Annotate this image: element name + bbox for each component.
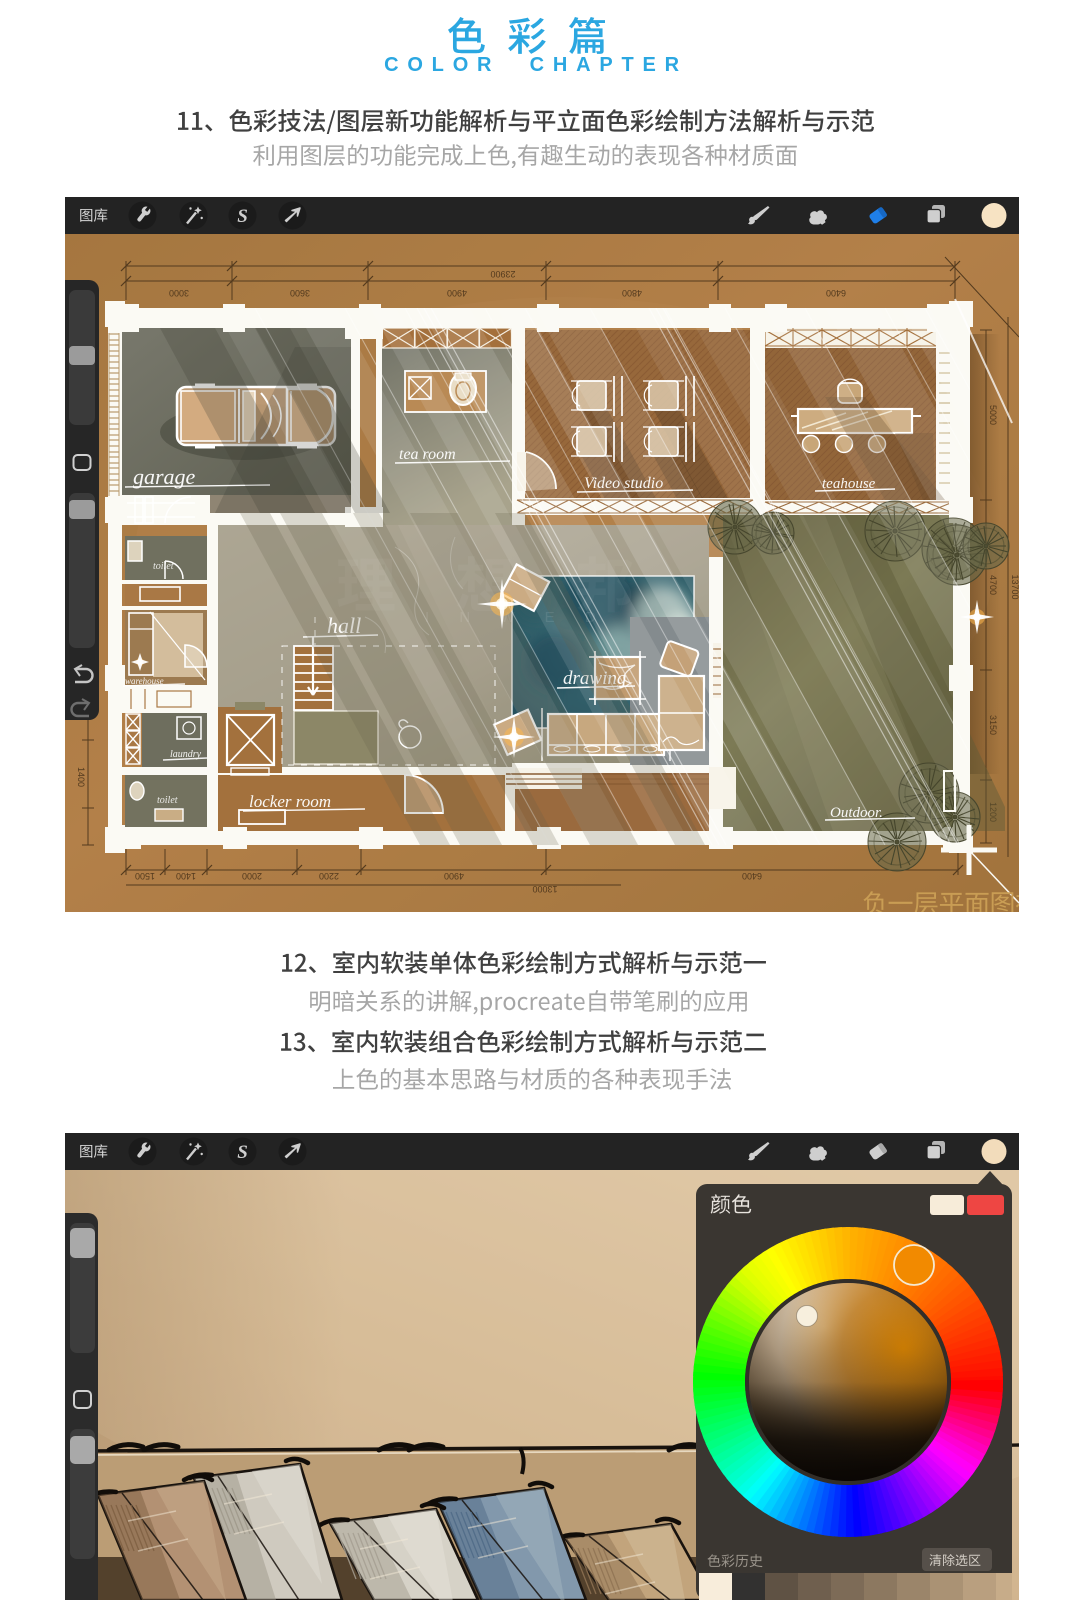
svg-text:S: S — [237, 206, 248, 227]
svg-text:6400: 6400 — [826, 288, 846, 298]
svg-text:1400: 1400 — [176, 871, 196, 881]
svg-text:1500: 1500 — [135, 871, 155, 881]
svg-text:2200: 2200 — [319, 871, 339, 881]
svg-text:13000: 13000 — [532, 884, 557, 894]
svg-text:4900: 4900 — [447, 288, 467, 298]
svg-text:toilet: toilet — [157, 795, 178, 806]
svg-text:6400: 6400 — [742, 871, 762, 881]
svg-text:1400: 1400 — [76, 767, 86, 787]
svg-text:locker room: locker room — [249, 792, 331, 811]
svg-text:23900: 23900 — [490, 269, 515, 279]
svg-text:garage: garage — [133, 464, 196, 489]
svg-text:4800: 4800 — [622, 288, 642, 298]
svg-text:toilet: toilet — [153, 561, 174, 572]
svg-text:2000: 2000 — [242, 871, 262, 881]
svg-text:3600: 3600 — [290, 288, 310, 298]
svg-text:I N W E D: I N W E D — [425, 609, 609, 626]
svg-text:S: S — [237, 1142, 248, 1163]
svg-text:3000: 3000 — [169, 288, 189, 298]
svg-text:13700: 13700 — [1010, 574, 1019, 599]
svg-text:4900: 4900 — [444, 871, 464, 881]
